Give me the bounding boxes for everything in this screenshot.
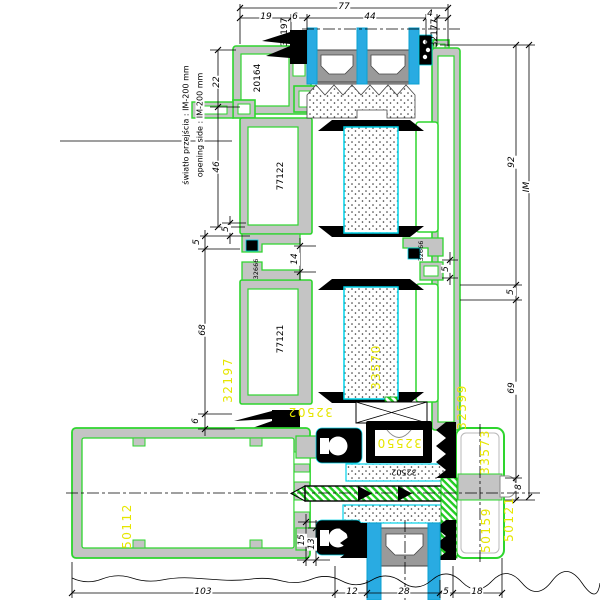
part-label-33570: 33570 xyxy=(369,343,383,391)
break-line xyxy=(72,571,600,594)
dim-18: 18 xyxy=(470,587,483,597)
part-label-33573: 33573 xyxy=(478,428,492,476)
part-label-32502-dark: 32502 xyxy=(391,468,416,477)
dim-13: 13 xyxy=(307,537,317,550)
dim-6-top: 6 xyxy=(291,12,299,22)
part-label-50159: 50159 xyxy=(479,506,493,554)
dim-12: 12 xyxy=(345,587,358,597)
part-label-50121: 50121 xyxy=(502,495,516,543)
dim-92: 92 xyxy=(507,155,517,168)
glazing-block-box xyxy=(356,402,427,423)
thermal-backer-block xyxy=(307,85,415,118)
fixing-screw-horizontal xyxy=(291,486,455,501)
note-opening-en: opening side : IM-200 mm xyxy=(196,72,205,179)
note-opening-pl: światło przejścia : IM-200 mm xyxy=(182,64,191,185)
dim-4: 4 xyxy=(426,9,434,19)
dim-5-right-a: 5 xyxy=(441,265,451,273)
dim-68: 68 xyxy=(198,323,208,336)
dim-8: 8 xyxy=(514,483,524,491)
dim-44: 44 xyxy=(363,12,376,22)
part-label-32502-yellow: 32502 xyxy=(286,405,334,419)
part-label-77121: 77121 xyxy=(276,325,286,354)
part-label-77122: 77122 xyxy=(276,162,286,191)
dim-69: 69 xyxy=(507,381,517,394)
part-label-32197-yellow: 32197 xyxy=(221,356,235,404)
dim-14: 14 xyxy=(290,252,300,265)
dim-5-left-b: 5 xyxy=(192,238,202,246)
infill-panel-upper xyxy=(318,120,424,237)
dim-6-bottom: 6 xyxy=(191,417,201,425)
part-label-20164: 20164 xyxy=(253,64,263,93)
part-label-50112: 50112 xyxy=(120,502,134,550)
dim-19: 19 xyxy=(259,12,272,22)
cad-drawing-canvas: 77 19 6 44 4 32197 32177 20164 77122 771… xyxy=(0,0,600,600)
dim-103: 103 xyxy=(193,587,212,597)
part-label-32197-top: 32197 xyxy=(280,18,290,47)
part-label-32666-right: 32666 xyxy=(417,241,425,262)
dim-22: 22 xyxy=(212,75,222,88)
roller-clip-upper xyxy=(316,428,362,463)
dim-15: 15 xyxy=(297,533,307,546)
part-label-32550: 32550 xyxy=(375,436,423,450)
part-label-32599: 32599 xyxy=(455,383,469,431)
dim-5-left-a: 5 xyxy=(221,225,231,233)
dim-5-bottom: 5 xyxy=(442,587,450,597)
threshold-profile xyxy=(72,428,310,558)
sash-interlock-hooks xyxy=(242,234,443,280)
part-label-32177: 32177 xyxy=(430,19,440,48)
dim-IM: IM xyxy=(522,181,532,193)
dim-overall-width: 77 xyxy=(337,2,350,12)
part-label-32666-left: 32666 xyxy=(252,259,260,280)
dim-5-right-b: 5 xyxy=(506,288,516,296)
dim-28: 28 xyxy=(397,587,410,597)
dim-46: 46 xyxy=(212,160,222,173)
